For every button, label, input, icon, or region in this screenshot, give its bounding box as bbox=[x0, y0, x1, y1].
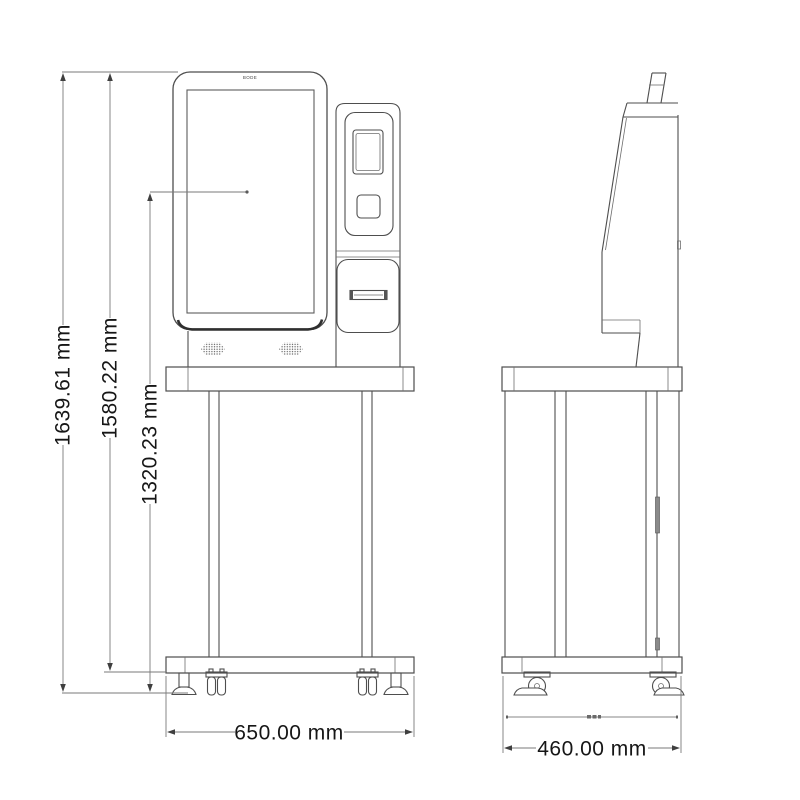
frame-height-label: 1580.22 mm bbox=[99, 317, 122, 439]
kiosk-head-side bbox=[602, 73, 681, 367]
rear-door-hinge bbox=[656, 497, 660, 533]
speaker-grille-left bbox=[201, 343, 225, 356]
leader-endpoint-dot bbox=[245, 190, 248, 193]
dimension-screen-center-height: 1320.23 mm bbox=[139, 190, 249, 692]
receipt-printer-panel bbox=[337, 260, 399, 333]
speaker-grille-right bbox=[279, 343, 303, 356]
head-bottom-shadow-edge bbox=[178, 320, 322, 330]
total-height-label: 1639.61 mm bbox=[52, 324, 75, 446]
printer-slot bbox=[350, 291, 387, 300]
kiosk-technical-drawing-page: BODE bbox=[0, 0, 800, 800]
dimension-total-height: 1639.61 mm bbox=[52, 73, 75, 692]
stand-legs-side bbox=[505, 391, 679, 657]
screen-center-height-label: 1320.23 mm bbox=[139, 383, 162, 505]
kiosk-dimension-diagram: BODE bbox=[0, 0, 800, 800]
head-lower-edge bbox=[636, 333, 640, 367]
kiosk-head-front: BODE bbox=[173, 72, 327, 330]
stand-legs-front bbox=[209, 391, 372, 657]
leveling-foot-right-front bbox=[384, 673, 408, 695]
base-width-label: 650.00 mm bbox=[234, 722, 344, 745]
scanner-window-inner bbox=[356, 134, 380, 171]
countertop-front bbox=[166, 367, 414, 391]
nfc-reader-window bbox=[357, 195, 380, 218]
scanner-payment-module-front bbox=[336, 104, 400, 368]
screen-slant-edge bbox=[602, 117, 623, 252]
base-inner-dimension-line bbox=[506, 715, 678, 719]
scanner-window-outer bbox=[353, 130, 383, 174]
touchscreen bbox=[187, 90, 314, 313]
brand-logo-text: BODE bbox=[243, 75, 257, 80]
base-front bbox=[166, 657, 414, 673]
leveling-foot-right-side bbox=[654, 688, 684, 695]
dimension-frame-height: 1580.22 mm bbox=[99, 73, 122, 671]
leveling-foot-left-front bbox=[172, 673, 196, 695]
side-view bbox=[502, 73, 684, 719]
base-depth-label: 460.00 mm bbox=[537, 738, 647, 761]
countertop-side bbox=[502, 367, 682, 391]
caster-left-side bbox=[514, 672, 550, 695]
speaker-body-front bbox=[188, 331, 303, 367]
scanner-pole-side bbox=[647, 73, 666, 103]
rear-door-latch bbox=[656, 638, 660, 650]
leveling-foot-left-side bbox=[514, 688, 547, 695]
caster-right-side bbox=[650, 672, 684, 695]
front-view: BODE bbox=[166, 72, 414, 695]
